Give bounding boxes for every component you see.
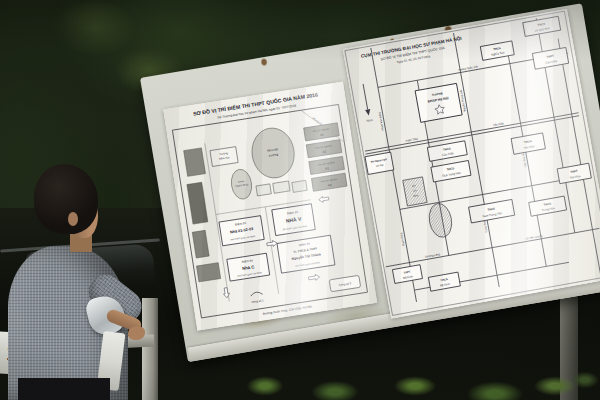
poster-campus-map: SƠ ĐỒ VỊ TRÍ ĐIỂM THI THPT QUỐC GIA NĂM … <box>163 81 377 330</box>
gate1-label: Cổng số 1 <box>251 298 264 304</box>
school-box-thpt-my-dinh: THPT Mỹ Đình <box>392 265 422 284</box>
school-box-thcs-nghia-tan: THCS Nghĩa Tân <box>480 41 514 60</box>
school-box-thcs-yen-hoa: THCS Yên Hòa <box>511 133 545 154</box>
stadium-hatched: Sân vận động <box>403 177 427 206</box>
school-box-thcs-cau-giay: THCS Cầu Giấy <box>427 141 467 162</box>
lab-a2-line2: A2 <box>322 149 327 154</box>
person-hand <box>128 326 145 340</box>
lab-block-a3: Khu thí nghiệm A3 <box>309 156 345 174</box>
lab-a3-line2: A3 <box>325 166 330 171</box>
exam-site-nha-010203: Điểm thi Nhà 01-02-03 (Thi THPT Quốc Gia… <box>219 216 264 246</box>
exam-site-nha-v: Điểm thi NHÀ V (Thi THPT Quốc Gia 2016) <box>272 204 316 236</box>
assembly-hall: Nhà Hội trường <box>249 125 298 181</box>
person-ear <box>68 212 78 226</box>
person-hair <box>34 164 98 234</box>
exam-site-nha-c: Điểm thi Nhà C (Thi THPT Quốc Gia 2016) <box>227 253 270 281</box>
lab-block-a2: Khu thí nghiệm A2 <box>306 140 342 158</box>
school-box-thcs-nam-trung-yen: THCS Nam Trung Yên <box>469 199 515 223</box>
lab-a4-line2: A4 <box>327 183 332 188</box>
gate-2: Cổng số 2 <box>329 275 360 291</box>
street-label-le-van-luong: Lê Văn Lương <box>525 234 543 241</box>
lab-block-a4: Khu thí nghiệm A4 <box>311 173 347 191</box>
person-viewing-board <box>0 150 190 400</box>
street-label-pham-van-dong: Phạm Văn Đồng <box>377 111 384 131</box>
person-pants <box>18 378 110 400</box>
park-hatched-ellipse <box>427 202 455 239</box>
lab-block-a1: Khu thí nghiệm A1 <box>304 123 340 141</box>
university-foreign-languages-box: ĐH Ngoại ngữ Hà Nội <box>365 152 394 174</box>
compass-south-label: Nam <box>366 118 373 123</box>
school-box-thcs-le-quy-don: THCS Lê Quý Đôn <box>523 16 561 36</box>
compass-south: Nam <box>360 83 373 123</box>
lab-a1-line2: A1 <box>320 133 325 138</box>
gate-1: Cổng số 1 <box>250 291 264 304</box>
school-box-thcs-my-dinh: THCS Mỹ Đình <box>428 272 460 291</box>
campus-map-svg: SƠ ĐỒ VỊ TRÍ ĐIỂM THI THPT QUỐC GIA NĂM … <box>163 81 377 330</box>
exam-site-nguyen-tat-thanh: Điểm thi Tr. THCS & THPT Nguyễn Tất Thàn… <box>277 235 335 273</box>
school-box-thpt-yen-hoa: THPT Yên Hòa <box>557 163 591 183</box>
street-label-hoang-quoc-viet: Hoàng Quốc Việt <box>458 64 478 71</box>
university-dhsp-box: Trường ĐHSP Hà Nội <box>415 83 462 122</box>
grass <box>225 356 600 400</box>
photo-scene: 1 SƠ ĐỒ VỊ TRÍ ĐIỂM THI THPT QUỐC GIA NĂ… <box>0 0 600 400</box>
pagoda: Chùa Thánh Chúa <box>229 168 253 201</box>
kindergarten: Trường Mầm non <box>210 147 238 167</box>
school-box-thcs-dich-vong-hau: THCS Dịch Vọng Hậu <box>431 161 471 182</box>
